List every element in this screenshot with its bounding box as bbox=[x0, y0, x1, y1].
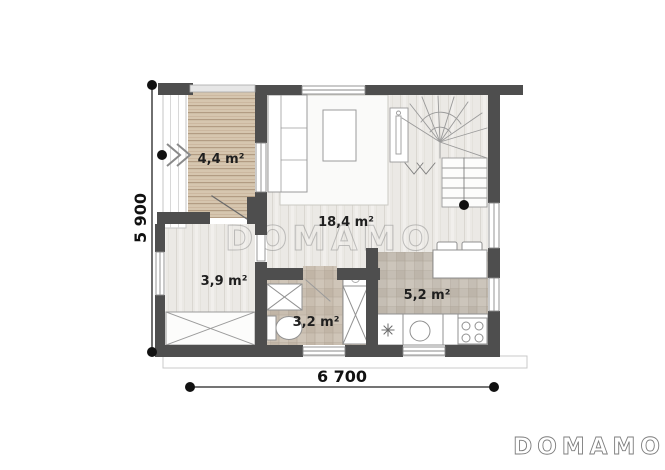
height-dimension-label: 5 900 bbox=[131, 193, 150, 243]
living-area-label: 18,4 m² bbox=[318, 215, 374, 230]
terrace-top-rail bbox=[190, 85, 255, 92]
dimension-horizontal: 6 700 bbox=[185, 367, 499, 392]
coffee-table bbox=[323, 110, 356, 161]
hall-living-door bbox=[257, 234, 265, 261]
width-dimension-label: 6 700 bbox=[317, 367, 367, 386]
fridge-snowflake-icon bbox=[382, 324, 394, 336]
window-bottom-right bbox=[403, 347, 445, 355]
bathroom-door-opening bbox=[303, 266, 337, 282]
dining-table bbox=[433, 250, 487, 278]
kitchen-sink bbox=[410, 321, 430, 341]
stove bbox=[458, 318, 487, 344]
hall-area-label: 3,9 m² bbox=[201, 274, 248, 289]
dimension-vertical: 5 900 bbox=[131, 80, 157, 357]
living-room-furniture bbox=[268, 95, 388, 205]
window-left bbox=[156, 252, 164, 295]
window-right-lower bbox=[489, 278, 499, 311]
bathroom-area-label: 3,2 m² bbox=[293, 315, 340, 330]
washing-machine bbox=[267, 284, 302, 310]
window-bottom-left bbox=[303, 347, 345, 355]
terrace-glass-door bbox=[256, 143, 266, 192]
terrace-area-label: 4,4 m² bbox=[198, 152, 245, 167]
stair-start-dot bbox=[459, 200, 469, 210]
sofa bbox=[268, 95, 307, 192]
kitchen-area-label: 5,2 m² bbox=[404, 288, 451, 303]
stair-flight bbox=[442, 158, 487, 207]
window-top bbox=[302, 86, 365, 94]
hall-wardrobe bbox=[166, 312, 255, 345]
brand-logo: DOMAMO bbox=[513, 434, 665, 460]
floor-plan-drawing: DOMAMO bbox=[0, 0, 665, 470]
window-right-upper bbox=[489, 203, 499, 248]
shower bbox=[343, 286, 368, 344]
floor-plan-page: DOMAMO bbox=[0, 0, 665, 470]
